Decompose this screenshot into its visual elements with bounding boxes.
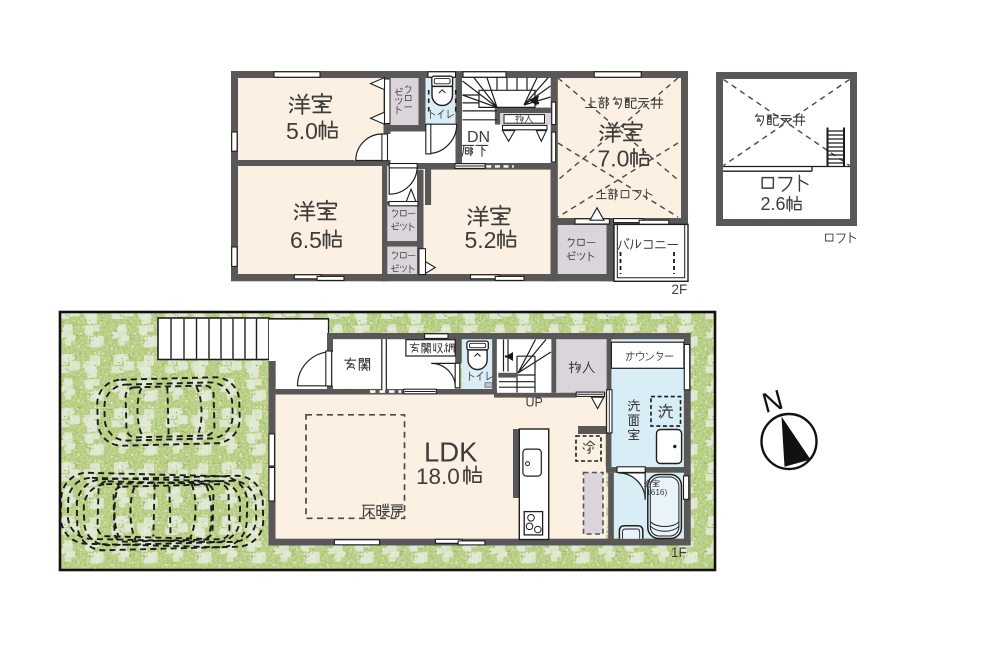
svg-text:1F: 1F: [671, 545, 687, 560]
svg-text:18.0: 18.0: [416, 464, 460, 489]
svg-text:DN: DN: [467, 129, 490, 146]
svg-text:2.6: 2.6: [761, 194, 786, 214]
svg-text:5.2: 5.2: [465, 227, 497, 253]
svg-text:5.0: 5.0: [286, 118, 318, 144]
svg-text:2F: 2F: [672, 282, 688, 297]
svg-text:UP: UP: [526, 396, 543, 410]
svg-text:7.0: 7.0: [598, 145, 630, 171]
svg-text:6.5: 6.5: [290, 227, 322, 253]
svg-text:(1616): (1616): [644, 488, 668, 497]
svg-text:LDK: LDK: [424, 437, 478, 468]
